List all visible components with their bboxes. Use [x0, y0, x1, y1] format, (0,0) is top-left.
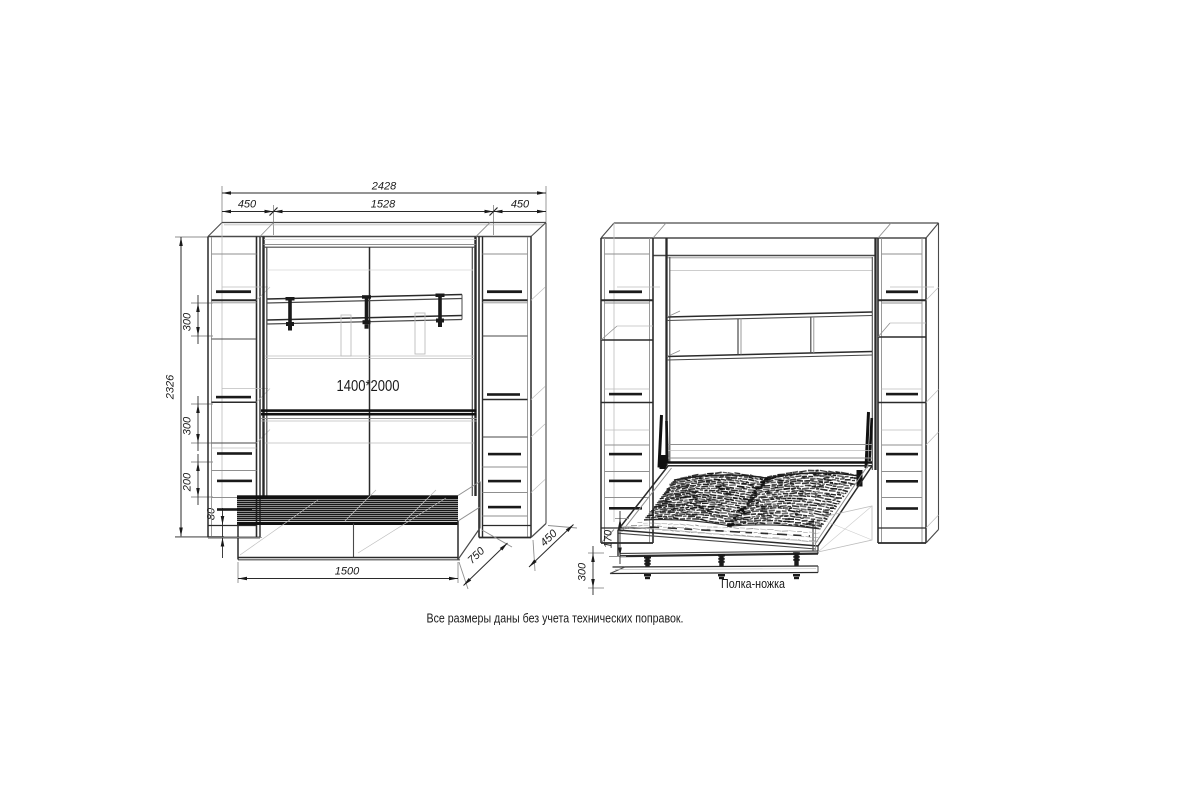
svg-text:1400*2000: 1400*2000 [337, 378, 400, 395]
svg-text:Все размеры даны без учета тех: Все размеры даны без учета технических п… [427, 611, 684, 626]
svg-text:1528: 1528 [371, 199, 396, 211]
svg-text:2326: 2326 [165, 374, 177, 400]
svg-text:450: 450 [511, 199, 530, 211]
svg-text:300: 300 [182, 312, 194, 331]
svg-text:300: 300 [577, 562, 589, 581]
svg-text:300: 300 [182, 416, 194, 435]
svg-text:1500: 1500 [335, 566, 360, 578]
svg-text:Полка-ножка: Полка-ножка [721, 577, 785, 591]
svg-text:2428: 2428 [371, 181, 397, 193]
svg-text:170: 170 [603, 529, 615, 548]
svg-text:200: 200 [182, 472, 194, 492]
svg-text:450: 450 [238, 199, 257, 211]
